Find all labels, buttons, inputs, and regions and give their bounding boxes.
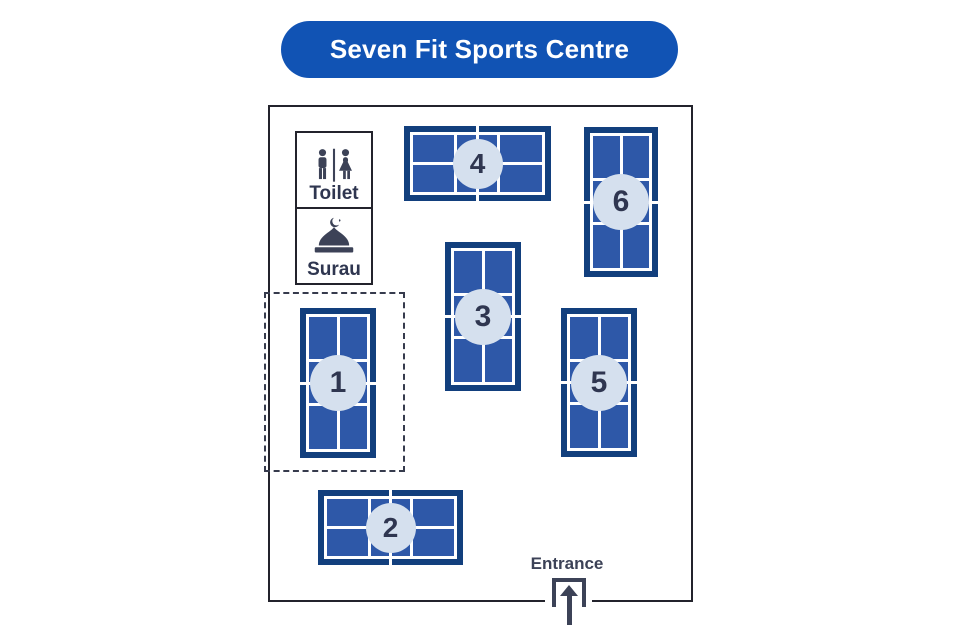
court-2-number-badge: 2: [366, 503, 416, 553]
page-title: Seven Fit Sports Centre: [330, 34, 629, 65]
entrance-arrow-head-icon: [560, 585, 578, 596]
court-number: 5: [591, 366, 608, 400]
court-number: 4: [470, 148, 486, 180]
facility-stack: Toilet Surau: [295, 131, 373, 285]
court-6[interactable]: 6: [584, 127, 658, 277]
court-5[interactable]: 5: [561, 308, 637, 457]
toilet-label: Toilet: [309, 184, 358, 204]
court-number: 1: [330, 366, 347, 400]
surau-box[interactable]: Surau: [297, 207, 371, 283]
court-5-number-badge: 5: [571, 355, 627, 411]
court-3[interactable]: 3: [445, 242, 521, 391]
court-number: 3: [475, 300, 492, 334]
toilet-icon: [311, 148, 357, 184]
title-banner: Seven Fit Sports Centre: [281, 21, 678, 78]
entrance-arrow-icon: [567, 594, 572, 625]
surau-label: Surau: [307, 260, 361, 280]
floor-plan: Seven Fit Sports Centre Toilet: [0, 0, 960, 640]
court-4-number-badge: 4: [453, 139, 503, 189]
court-3-number-badge: 3: [455, 289, 511, 345]
court-6-number-badge: 6: [593, 174, 649, 230]
court-1[interactable]: 1: [300, 308, 376, 458]
court-1-number-badge: 1: [310, 355, 366, 411]
court-number: 6: [613, 185, 630, 219]
surau-mosque-icon: [307, 216, 361, 260]
court-2[interactable]: 2: [318, 490, 463, 565]
court-4[interactable]: 4: [404, 126, 551, 201]
court-number: 2: [383, 512, 399, 544]
toilet-box[interactable]: Toilet: [297, 133, 371, 207]
entrance-label: Entrance: [504, 554, 630, 574]
